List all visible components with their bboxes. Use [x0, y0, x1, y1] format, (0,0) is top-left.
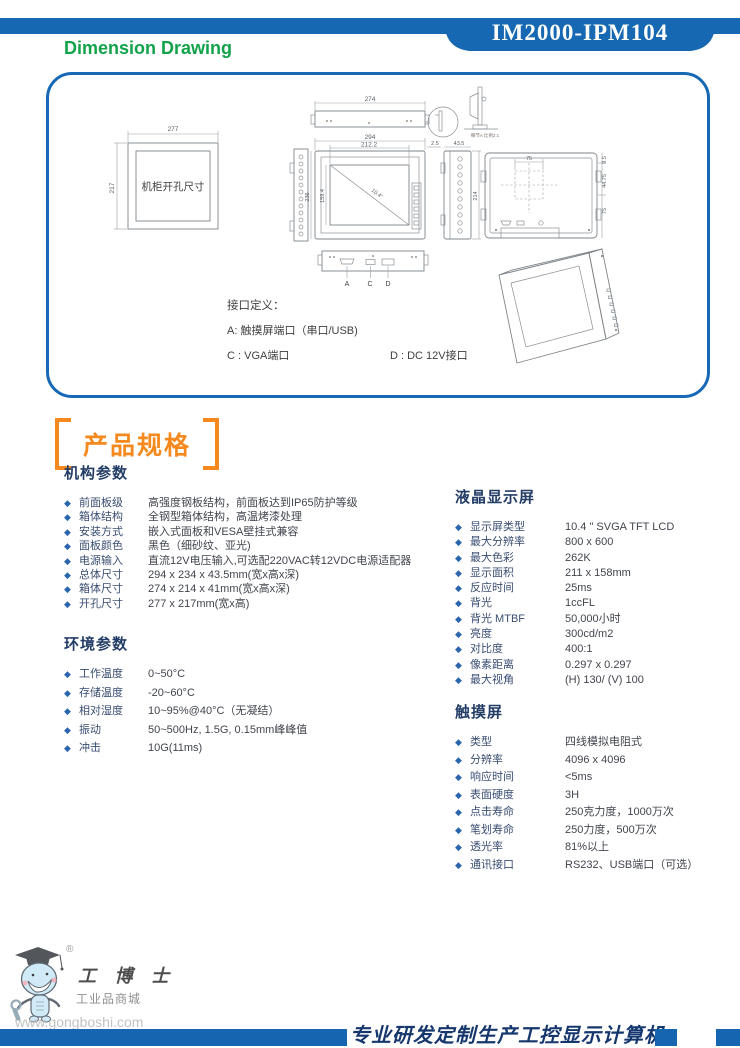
spec-row: ◆振动50~500Hz, 1.5G, 0.15mm峰峰值 [64, 721, 456, 740]
diamond-icon: ◆ [455, 553, 470, 564]
spec-column-left: 机构参数 ◆前面板级高强度钢板结构，前面板达到IP65防护等级 ◆箱体结构全钢型… [64, 462, 456, 758]
dim-overall-height: 236 [305, 192, 311, 201]
model-number: IM2000-IPM104 [440, 20, 720, 46]
brand-subtitle: 工业品商城 [76, 990, 141, 1007]
footer-square [655, 1029, 677, 1046]
spec-row: ◆电源输入直流12V电压输入,可选配220VAC转12VDC电源适配器 [64, 552, 456, 566]
spec-column-right: 液晶显示屏 ◆显示屏类型10.4 " SVGA TFT LCD ◆最大分辨率80… [455, 486, 740, 873]
spec-row: ◆笔划寿命250力度，500万次 [455, 821, 740, 839]
dim-side-depth: 43.5 [454, 141, 465, 147]
group-title-lcd: 液晶显示屏 [455, 486, 740, 507]
diamond-icon: ◆ [455, 660, 470, 671]
diamond-icon: ◆ [455, 790, 470, 801]
dim-vesa-width: 75 [526, 156, 532, 162]
spec-row: ◆箱体尺寸274 x 214 x 41mm(宽x高x深) [64, 580, 456, 594]
spec-row: ◆总体尺寸294 x 234 x 43.5mm(宽x高x深) [64, 566, 456, 580]
diamond-icon: ◆ [455, 755, 470, 766]
interface-definitions: 接口定义： A: 触摸屏端口（串口/USB) C : VGA端口 D : DC … [227, 298, 468, 362]
spec-row: ◆开孔尺寸277 x 217mm(宽x高) [64, 595, 456, 609]
detail-note: 细节A 比例2:1 [471, 132, 500, 139]
interface-item-c: C : VGA端口 [227, 349, 289, 362]
spec-row: ◆相对湿度10~95%@40°C（无凝结） [64, 702, 456, 721]
group-mechanical: ◆前面板级高强度钢板结构，前面板达到IP65防护等级 ◆箱体结构全钢型箱体结构，… [64, 494, 456, 609]
diamond-icon: ◆ [455, 842, 470, 853]
diamond-icon: ◆ [455, 772, 470, 783]
diamond-icon: ◆ [455, 825, 470, 836]
spec-row: ◆存储温度-20~60°C [64, 684, 456, 703]
footer-bar [0, 1029, 347, 1046]
diamond-icon: ◆ [455, 537, 470, 548]
cutout-view: 机柜开孔尺寸 277 217 [109, 126, 218, 229]
spec-row: ◆显示屏类型10.4 " SVGA TFT LCD [455, 518, 740, 533]
dim-rear-offset: 9.5 [602, 156, 608, 164]
dim-vesa-height: 75 [602, 208, 608, 214]
detail-view: 细节A 比例2:1 [425, 87, 500, 139]
group-title-environment: 环境参数 [64, 633, 456, 654]
diamond-icon: ◆ [64, 669, 79, 680]
diamond-icon: ◆ [455, 629, 470, 640]
spec-row: ◆安装方式嵌入式面板和VESA壁挂式兼容 [64, 523, 456, 537]
spec-row: ◆通讯接口RS232、USB端口（可选） [455, 856, 740, 874]
dim-overall-width: 294 [365, 134, 376, 141]
dim-rear-mid: 44.75 [602, 174, 608, 188]
cutout-label: 机柜开孔尺寸 [142, 180, 205, 193]
group-title-mechanical: 机构参数 [64, 462, 456, 483]
spec-row: ◆前面板级高强度钢板结构，前面板达到IP65防护等级 [64, 494, 456, 508]
diamond-icon: ◆ [64, 512, 79, 523]
diamond-icon: ◆ [64, 570, 79, 581]
interface-item-a: A: 触摸屏端口（串口/USB) [227, 323, 358, 337]
diamond-icon: ◆ [64, 743, 79, 754]
spec-row: ◆透光率81%以上 [455, 838, 740, 856]
port-label-a: A [345, 281, 350, 288]
port-label-d: D [385, 281, 390, 288]
brand-url: www.gongboshi.com [15, 1014, 143, 1030]
interface-title: 接口定义： [227, 298, 285, 312]
dim-screen-width: 212.2 [361, 142, 378, 149]
top-view: 274 [311, 96, 429, 127]
dim-side-gap: 2.5 [431, 141, 439, 147]
brand-name: 工 博 士 [78, 962, 176, 988]
diamond-icon: ◆ [455, 807, 470, 818]
group-touch: ◆类型四线模拟电阻式 ◆分辨率4096 x 4096 ◆响应时间<5ms ◆表面… [455, 733, 740, 873]
spec-row: ◆冲击10G(11ms) [64, 739, 456, 758]
diamond-icon: ◆ [64, 599, 79, 610]
diamond-icon: ◆ [455, 583, 470, 594]
dim-cutout-width: 277 [168, 126, 179, 133]
diamond-icon: ◆ [455, 568, 470, 579]
spec-row: ◆面板颜色黑色（细砂纹、亚光) [64, 537, 456, 551]
group-lcd: ◆显示屏类型10.4 " SVGA TFT LCD ◆最大分辨率800 x 60… [455, 518, 740, 686]
diamond-icon: ◆ [64, 498, 79, 509]
diamond-icon: ◆ [455, 522, 470, 533]
spec-row: ◆点击寿命250克力度，1000万次 [455, 803, 740, 821]
diamond-icon: ◆ [64, 725, 79, 736]
footer-slogan: 专业研发定制生产工控显示计算机 [350, 1019, 665, 1048]
dim-top-width: 274 [365, 96, 376, 103]
dimension-drawing-box: 机柜开孔尺寸 277 217 274 细节A 比例2:1 [46, 72, 710, 398]
spec-row: ◆背光1ccFL [455, 594, 740, 609]
dim-diagonal: 10.4" [370, 188, 384, 200]
diamond-icon: ◆ [455, 614, 470, 625]
spec-row: ◆工作温度0~50°C [64, 665, 456, 684]
dim-side-height: 214 [473, 191, 479, 200]
diamond-icon: ◆ [64, 527, 79, 538]
spec-row: ◆最大色彩262K [455, 549, 740, 564]
front-view: 10.4" 294 212.2 236 159.4 [305, 134, 425, 239]
diamond-icon: ◆ [455, 737, 470, 748]
spec-row: ◆表面硬度3H [455, 786, 740, 804]
footer-square [716, 1029, 740, 1046]
diamond-icon: ◆ [64, 584, 79, 595]
bottom-view: A C D [318, 251, 428, 288]
diamond-icon: ◆ [64, 706, 79, 717]
iso-view [499, 249, 619, 363]
diamond-icon: ◆ [64, 556, 79, 567]
registered-mark: ® [66, 944, 73, 955]
diamond-icon: ◆ [455, 598, 470, 609]
group-title-touch: 触摸屏 [455, 701, 740, 722]
dim-cutout-height: 217 [109, 182, 116, 193]
interface-item-d: D : DC 12V接口 [390, 349, 468, 362]
diamond-icon: ◆ [455, 644, 470, 655]
mascot-logo [6, 942, 74, 1024]
spec-row: ◆背光 MTBF50,000小时 [455, 610, 740, 625]
spec-row: ◆类型四线模拟电阻式 [455, 733, 740, 751]
diamond-icon: ◆ [455, 860, 470, 871]
port-label-c: C [367, 281, 372, 288]
spec-row: ◆最大分辨率800 x 600 [455, 533, 740, 548]
spec-row: ◆反应时间25ms [455, 579, 740, 594]
diamond-icon: ◆ [64, 541, 79, 552]
spec-row: ◆像素距离0.297 x 0.297 [455, 656, 740, 671]
spec-row: ◆对比度400:1 [455, 640, 740, 655]
spec-row: ◆亮度300cd/m2 [455, 625, 740, 640]
rear-view: 75 9.5 44.75 75 [481, 153, 608, 238]
spec-title: 产品规格 [71, 426, 203, 462]
dimension-drawing: 机柜开孔尺寸 277 217 274 细节A 比例2:1 [49, 75, 707, 395]
dim-screen-height: 159.4 [320, 189, 326, 203]
diamond-icon: ◆ [64, 688, 79, 699]
spec-row: ◆箱体结构全钢型箱体结构，高温烤漆处理 [64, 508, 456, 522]
diamond-icon: ◆ [455, 675, 470, 686]
spec-row: ◆响应时间<5ms [455, 768, 740, 786]
spec-row: ◆最大视角(H) 130/ (V) 100 [455, 671, 740, 686]
spec-row: ◆显示面积211 x 158mm [455, 564, 740, 579]
spec-row: ◆分辨率4096 x 4096 [455, 751, 740, 769]
page-title: Dimension Drawing [64, 38, 232, 59]
group-environment: ◆工作温度0~50°C ◆存储温度-20~60°C ◆相对湿度10~95%@40… [64, 665, 456, 758]
side-view: 2.5 43.5 214 [427, 141, 481, 239]
